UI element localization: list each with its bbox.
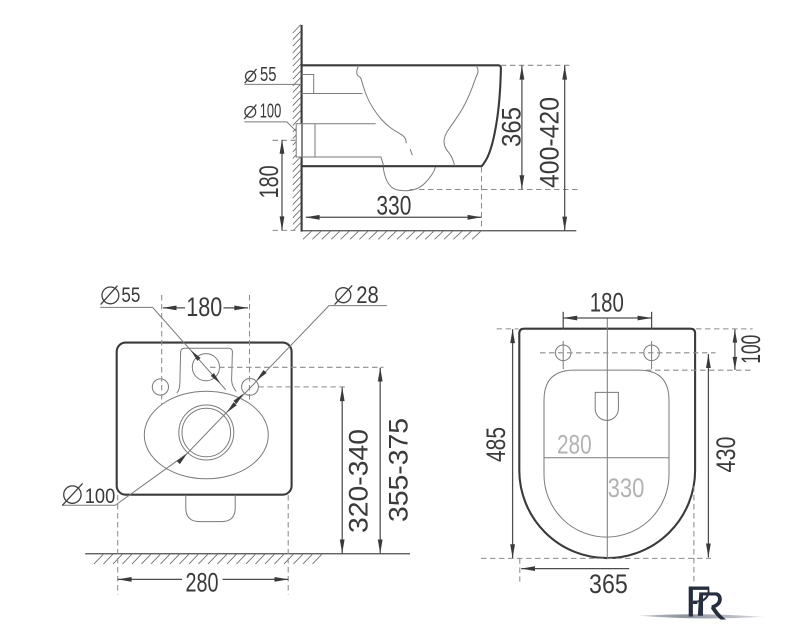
svg-text:280: 280 <box>186 567 219 597</box>
svg-text:100: 100 <box>85 485 116 508</box>
svg-text:180: 180 <box>590 288 624 318</box>
svg-text:28: 28 <box>356 282 379 309</box>
svg-text:100: 100 <box>736 335 766 364</box>
svg-text:320-340: 320-340 <box>343 429 373 533</box>
svg-text:280: 280 <box>557 430 592 460</box>
svg-text:355-375: 355-375 <box>384 418 414 522</box>
svg-text:485: 485 <box>481 427 511 462</box>
svg-text:180: 180 <box>186 292 222 322</box>
svg-text:430: 430 <box>711 437 741 473</box>
svg-text:55: 55 <box>260 64 277 86</box>
svg-text:330: 330 <box>608 473 645 503</box>
svg-text:365: 365 <box>496 107 526 147</box>
svg-text:330: 330 <box>376 190 411 220</box>
svg-text:55: 55 <box>121 284 140 307</box>
svg-text:180: 180 <box>254 165 284 198</box>
svg-text:100: 100 <box>260 101 282 123</box>
svg-text:365: 365 <box>589 569 628 599</box>
svg-text:400-420: 400-420 <box>534 97 564 188</box>
